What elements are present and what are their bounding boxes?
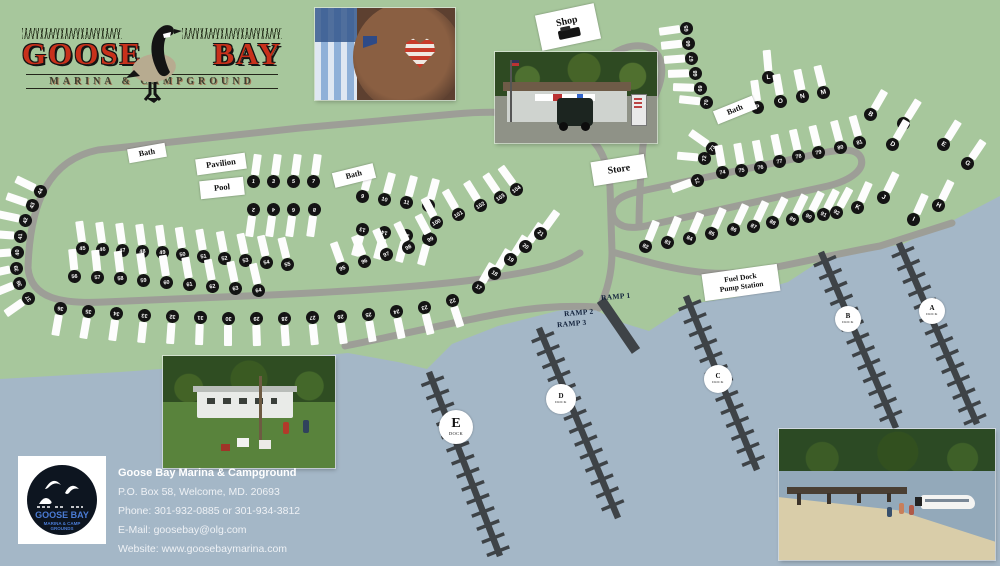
contact-email: E-Mail: goosebay@olg.com bbox=[118, 521, 300, 540]
boat-trim-art bbox=[925, 499, 969, 502]
campsite-6: 6 bbox=[286, 202, 301, 217]
campsite-3: 3 bbox=[266, 174, 281, 189]
campsite-5: 5 bbox=[286, 174, 301, 189]
campsite-7: 7 bbox=[306, 174, 321, 189]
campsite-34: 34 bbox=[109, 306, 124, 321]
campsite-68: 68 bbox=[688, 66, 701, 79]
campsite-40: 40 bbox=[10, 245, 24, 259]
mower-icon bbox=[558, 26, 581, 39]
pier-post-art bbox=[827, 493, 831, 504]
campsite-69: 69 bbox=[693, 81, 706, 94]
campsite-56: 56 bbox=[67, 269, 81, 283]
campsite-pad bbox=[195, 323, 204, 344]
campsite-41: 41 bbox=[13, 229, 27, 243]
campsite-45: 45 bbox=[75, 241, 90, 256]
flag-art bbox=[511, 60, 519, 66]
contact-title: Goose Bay Marina & Campground bbox=[118, 464, 300, 483]
chair-art bbox=[259, 440, 271, 449]
campsite-57: 57 bbox=[90, 270, 104, 284]
campsite-pad bbox=[166, 322, 175, 344]
beach-and-boat-photo bbox=[779, 429, 995, 560]
campsite-4: 4 bbox=[266, 202, 281, 217]
trailer-roof-art bbox=[193, 386, 297, 392]
dock-badge-C: CDOCK bbox=[704, 365, 732, 393]
campsite-pad bbox=[667, 69, 688, 78]
campsite-pad bbox=[672, 83, 693, 92]
dock-badge-E: EDOCK bbox=[439, 410, 473, 444]
kid-with-flag-heart-sunglasses-photo bbox=[315, 8, 455, 100]
logo-word-bay: BAY bbox=[213, 36, 282, 72]
campsite-70: 70 bbox=[699, 95, 713, 109]
pole-art bbox=[259, 376, 262, 446]
svg-text:GROUNDS: GROUNDS bbox=[50, 526, 73, 531]
campsite-pad bbox=[0, 248, 11, 257]
campsite-31: 31 bbox=[193, 310, 206, 323]
cart-wheel-art bbox=[559, 122, 568, 131]
cart-wheel-art bbox=[581, 122, 590, 131]
contact-address: P.O. Box 58, Welcome, MD. 20693 bbox=[118, 483, 300, 502]
goose-bay-logo: GOOSE BAY MARINA & CAMPGROUND bbox=[22, 22, 282, 118]
svg-text:GOOSE BAY: GOOSE BAY bbox=[35, 510, 89, 520]
campsite-30: 30 bbox=[222, 312, 235, 325]
person-art bbox=[303, 420, 309, 433]
goose-icon bbox=[124, 20, 186, 104]
campsite-29: 29 bbox=[249, 311, 262, 324]
person-art bbox=[887, 507, 892, 517]
goose-badge-icon: GOOSE BAY MARINA & CAMP GROUNDS bbox=[25, 463, 99, 537]
pier-post-art bbox=[887, 493, 891, 502]
pier-post-art bbox=[857, 493, 861, 503]
contact-website: Website: www.goosebaymarina.com bbox=[118, 540, 300, 559]
flag-backdrop bbox=[315, 8, 357, 42]
marina-store-photo bbox=[495, 52, 657, 143]
campsite-pad bbox=[280, 324, 289, 346]
person-art bbox=[909, 505, 914, 515]
campsite-67: 67 bbox=[684, 51, 698, 65]
campsite-2: 2 bbox=[246, 202, 261, 217]
campsite-pad bbox=[252, 324, 261, 345]
store-roof-art bbox=[503, 82, 631, 91]
trailer-art bbox=[197, 390, 293, 418]
campsite-58: 58 bbox=[113, 271, 127, 285]
sign-board-text-art bbox=[634, 98, 642, 108]
face-art bbox=[353, 8, 455, 100]
dock-badge-D: DDOCK bbox=[546, 384, 576, 414]
boat-art bbox=[921, 495, 975, 509]
chair-art bbox=[237, 438, 249, 447]
outboard-art bbox=[915, 497, 922, 506]
flag-pole-art bbox=[510, 60, 512, 122]
trailer-window-art bbox=[207, 398, 277, 404]
campsite-pad bbox=[663, 54, 685, 63]
campsite-65: 65 bbox=[679, 21, 694, 36]
person-art bbox=[283, 422, 289, 434]
campsite-pad bbox=[0, 230, 14, 239]
trees-art bbox=[779, 429, 995, 471]
campsite-59: 59 bbox=[136, 273, 151, 288]
contact-info: Goose Bay Marina & Campground P.O. Box 5… bbox=[118, 464, 300, 559]
campsite-8: 8 bbox=[307, 202, 322, 217]
campsite-66: 66 bbox=[681, 36, 695, 50]
campsite-pad bbox=[224, 325, 232, 346]
dock-badge-A: ADOCK bbox=[919, 298, 945, 324]
person-art bbox=[899, 503, 904, 514]
campground-trailer-photo bbox=[163, 356, 335, 468]
dock-badge-B: BDOCK bbox=[835, 306, 861, 332]
cooler-art bbox=[221, 444, 230, 451]
campsite-27: 27 bbox=[305, 310, 319, 324]
campsite-1: 1 bbox=[246, 174, 261, 189]
campsite-33: 33 bbox=[137, 308, 151, 322]
circle-logo-badge: GOOSE BAY MARINA & CAMP GROUNDS bbox=[18, 456, 106, 544]
goose-bay-campground-map: GOOSE BAY MARINA & CAMPGROUND bbox=[0, 0, 1000, 566]
pier-post-art bbox=[797, 493, 801, 505]
campsite-26: 26 bbox=[333, 309, 348, 324]
campsite-32: 32 bbox=[165, 309, 179, 323]
contact-phone: Phone: 301-932-0885 or 301-934-3812 bbox=[118, 502, 300, 521]
campsite-28: 28 bbox=[277, 311, 291, 325]
